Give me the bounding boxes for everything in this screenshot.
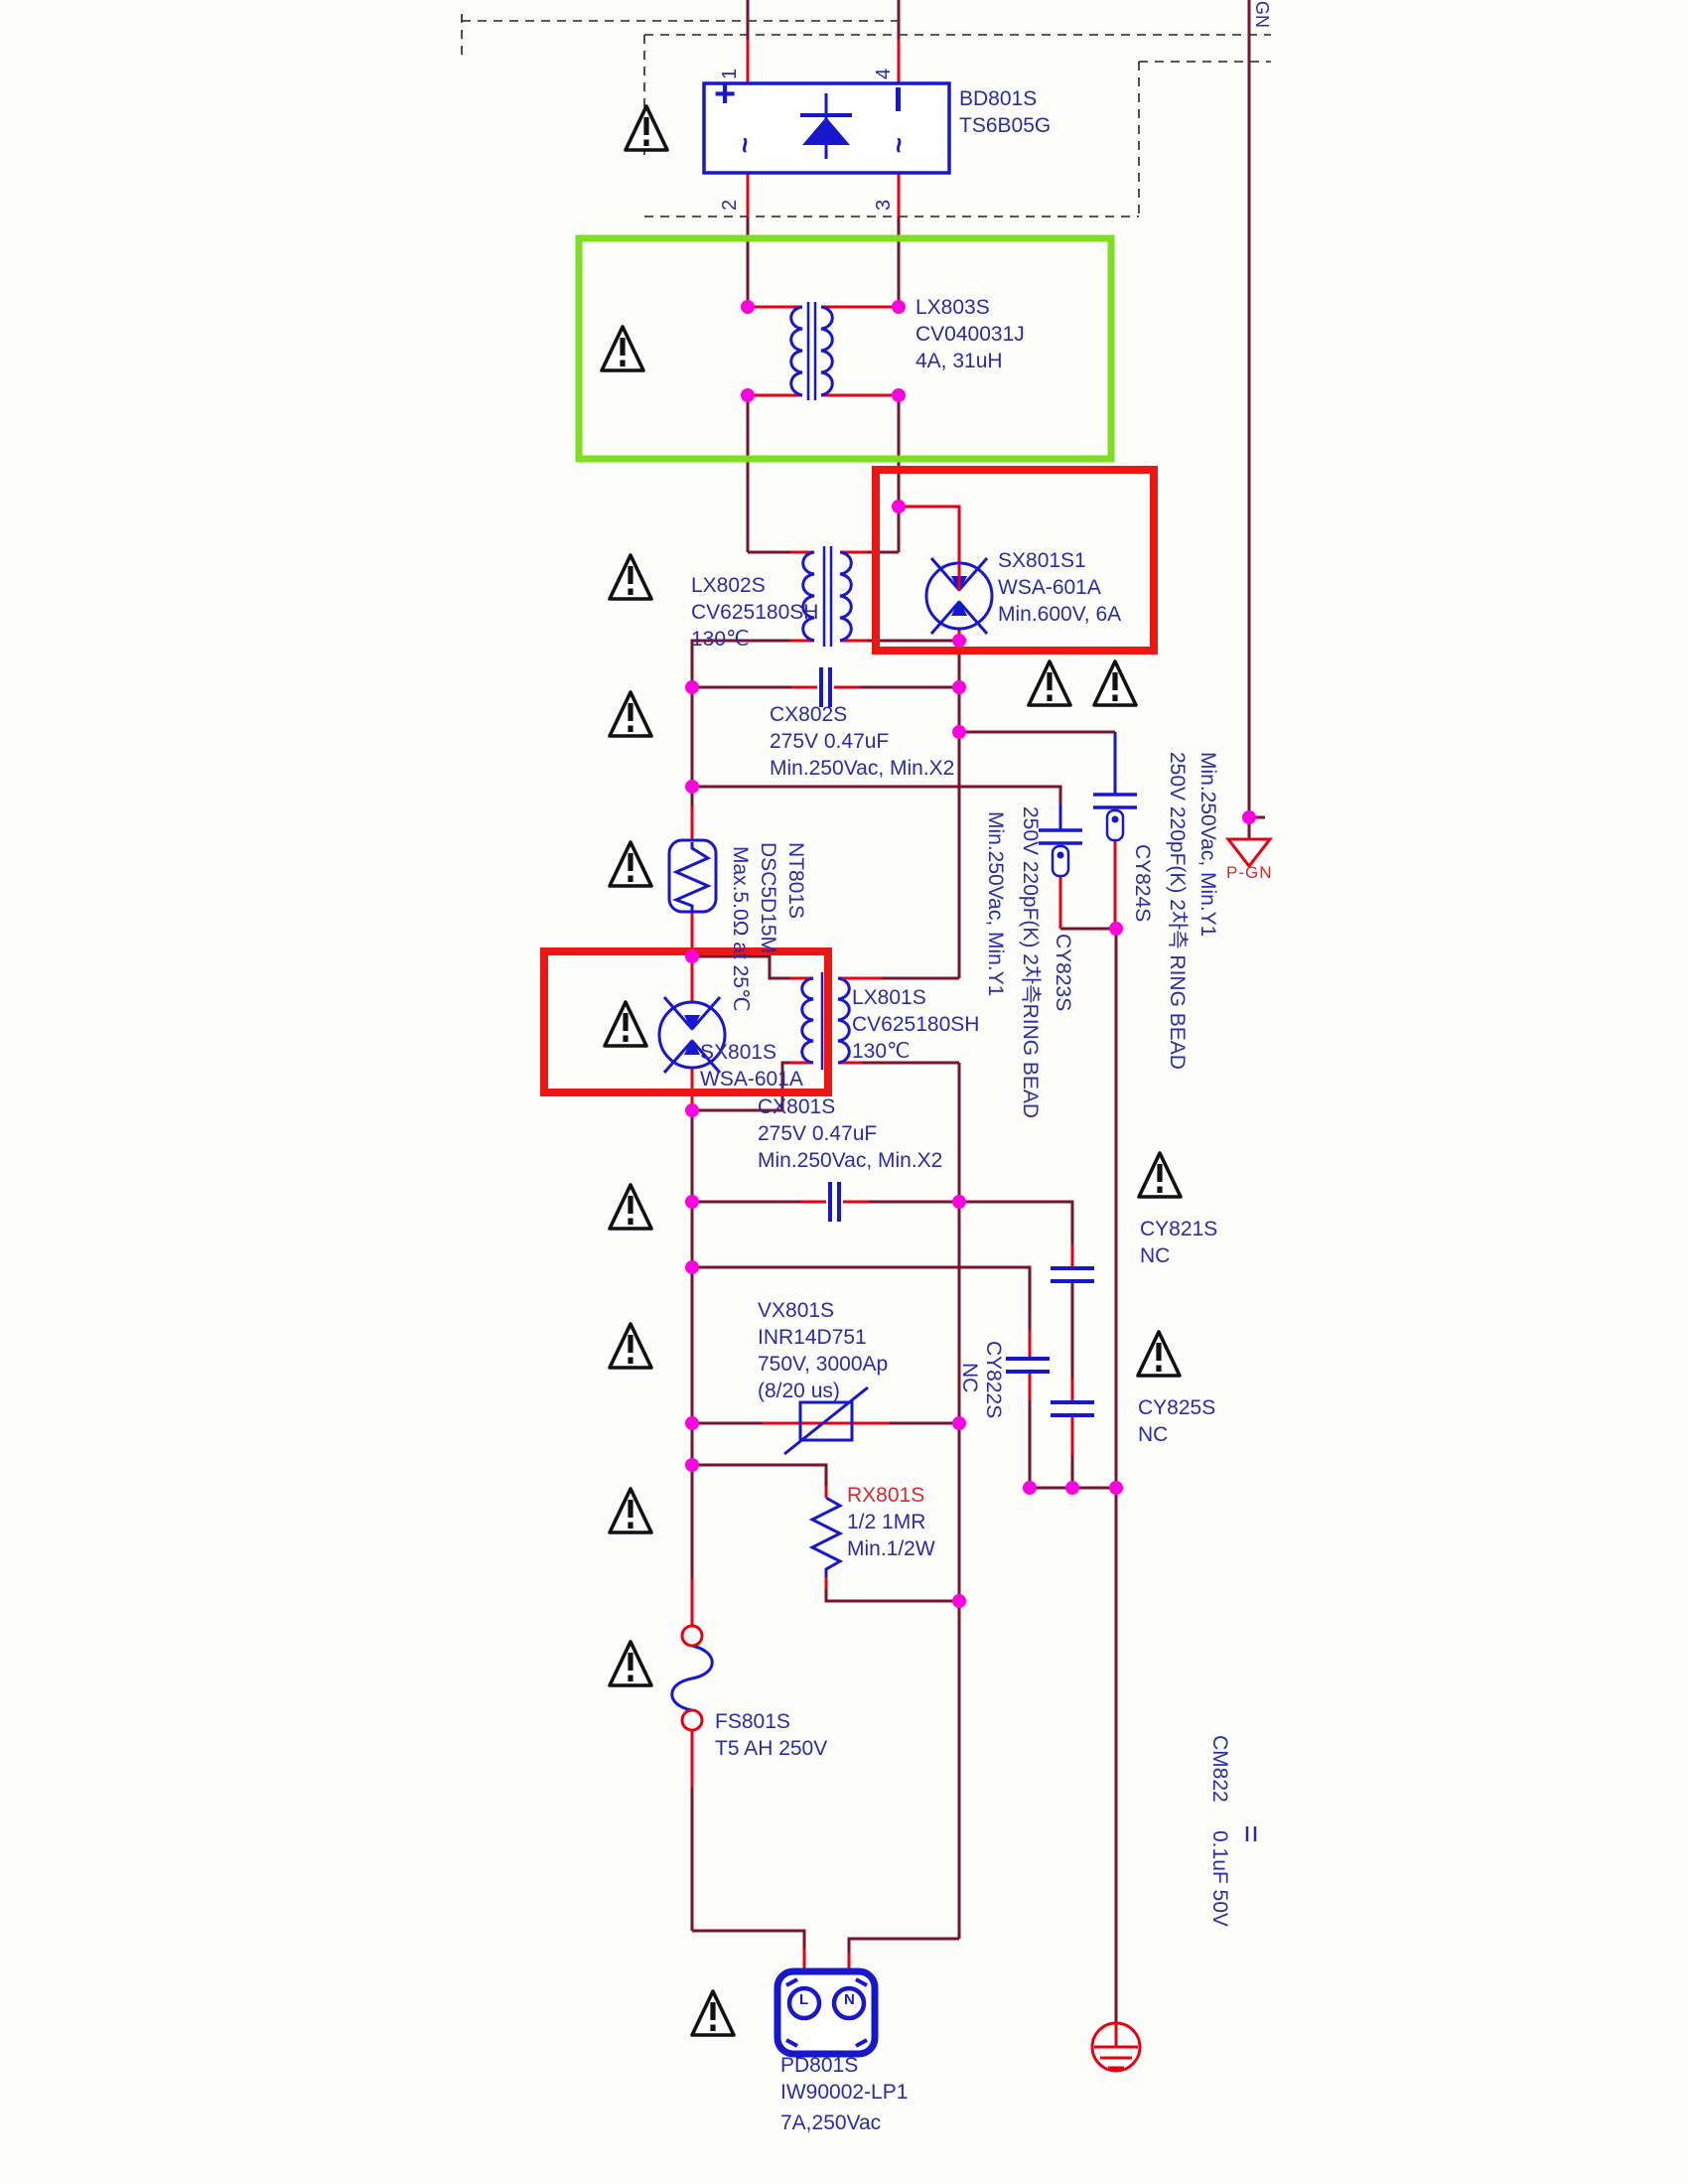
nt801s-ref: NT801S (783, 842, 807, 919)
rx801s-spec: Min.1/2W (847, 1535, 935, 1562)
nt801s-thermistor-symbol (669, 840, 716, 912)
sx801s-ref: SX801S (700, 1039, 803, 1066)
pd801s-rating: 7A,250Vac (780, 2110, 881, 2136)
rx801s-value: 1/2 1MR (847, 1509, 935, 1535)
green-highlight-box (579, 238, 1111, 459)
fs801s-label: FS801S T5 AH 250V (715, 1708, 827, 1762)
bd801s-ref: BD801S (959, 85, 1051, 112)
warning-icon (1094, 661, 1136, 705)
schematic-canvas (0, 0, 1688, 2184)
cy824s-cap-symbol (1093, 795, 1137, 840)
cy824s-ref: CY824S (1130, 844, 1154, 922)
lx803s-label: LX803S CV040031J 4A, 31uH (915, 294, 1025, 374)
cy821s-status: NC (1140, 1242, 1217, 1269)
bridge-ac-mark-right: ~ (885, 137, 913, 153)
sx801s1-arrester-symbol (926, 558, 992, 634)
cx802s-label: CX802S 275V 0.47uF Min.250Vac, Min.X2 (770, 701, 954, 782)
pd801s-pin-n: N (844, 1992, 855, 2007)
cx802s-ref: CX802S (770, 701, 954, 728)
nt801s-part: DSC5D15M (756, 842, 779, 953)
sx801s1-spec: Min.600V, 6A (998, 601, 1121, 628)
p-gn-net-label: P-GN (1226, 863, 1273, 883)
rx801s-label: RX801S 1/2 1MR Min.1/2W (847, 1482, 935, 1562)
bridge-pin1-number: 1 (719, 69, 741, 79)
lx802s-temp: 130℃ (691, 626, 818, 653)
cy825s-status: NC (1138, 1421, 1215, 1448)
cx801s-cap-symbol (830, 1182, 839, 1222)
sx801s-part: WSA-601A (700, 1066, 803, 1092)
cx801s-ref: CX801S (758, 1093, 942, 1120)
bridge-plus-terminal: + (714, 77, 736, 111)
pd801s-pin-l: L (799, 1992, 808, 2007)
rx801s-resistor-symbol (812, 1498, 840, 1577)
cy825s-cap-symbol (1051, 1402, 1094, 1415)
pd801s-ref: PD801S (780, 2052, 908, 2079)
warning-icon (605, 1002, 646, 1046)
cy824s-spec: 250V 220pF(K) 2차측 RING BEAD (1165, 752, 1189, 1070)
cy822s-cap-symbol (1006, 1359, 1050, 1372)
lx801s-ref: LX801S (852, 984, 979, 1011)
bridge-pin3-number: 3 (873, 200, 895, 211)
lx801s-label: LX801S CV625180SH 130℃ (852, 984, 979, 1065)
sx801s1-part: WSA-601A (998, 574, 1121, 601)
bridge-rectifier-symbol (704, 83, 949, 173)
bridge-pin4-number: 4 (873, 69, 895, 79)
warning-icon (1138, 1332, 1180, 1376)
cy822s-ref: CY822S (981, 1341, 1005, 1418)
lx802s-label: LX802S CV625180SH 130℃ (691, 572, 818, 653)
fs801s-spec: T5 AH 250V (715, 1735, 827, 1762)
cx801s-spec: Min.250Vac, Min.X2 (758, 1147, 942, 1174)
pd801s-label: PD801S IW90002-LP1 (780, 2052, 908, 2106)
sx801s1-label: SX801S1 WSA-601A Min.600V, 6A (998, 547, 1121, 628)
cx801s-label: CX801S 275V 0.47uF Min.250Vac, Min.X2 (758, 1093, 942, 1174)
cy823s-rating: Min.250Vac, Min.Y1 (983, 811, 1007, 996)
warning-icon (626, 106, 667, 150)
lx801s-temp: 130℃ (852, 1038, 979, 1065)
top-edge-net-label-fragment: GN (1250, 1, 1274, 28)
ring-bead-icon (1053, 846, 1068, 876)
schematic-page: BD801S TS6B05G + ~ ~ 1 4 2 3 LX803S CV04… (0, 0, 1688, 2184)
lx803s-choke-symbol (791, 302, 833, 400)
bd801s-label: BD801S TS6B05G (959, 85, 1051, 139)
cy824s-rating: Min.250Vac, Min.Y1 (1196, 752, 1219, 937)
cy823s-ref: CY823S (1051, 934, 1074, 1011)
warning-icon (610, 1324, 651, 1368)
cy821s-cap-symbol (1051, 1268, 1094, 1281)
vx801s-pulse: (8/20 us) (758, 1378, 888, 1404)
vx801s-part: INR14D751 (758, 1324, 888, 1351)
lx803s-spec: 4A, 31uH (915, 348, 1025, 374)
warning-icon (610, 1185, 651, 1229)
warning-icon (610, 1489, 651, 1532)
sx801s1-ref: SX801S1 (998, 547, 1121, 574)
cy822s-status: NC (957, 1363, 981, 1392)
ring-bead-icon (1107, 810, 1123, 840)
cm822-value: 0.1uF 50V (1207, 1830, 1231, 1927)
warning-icon (610, 692, 651, 736)
vx801s-label: VX801S INR14D751 750V, 3000Ap (8/20 us) (758, 1297, 888, 1404)
p-gn-net-arrow-icon (1228, 839, 1270, 866)
warning-icon (610, 842, 651, 886)
cy821s-label: CY821S NC (1140, 1216, 1217, 1269)
lx802s-ref: LX802S (691, 572, 818, 599)
cy823s-cap-symbol (1039, 830, 1082, 876)
warning-icon (692, 1991, 734, 2035)
nt801s-spec: Max.5.0Ω at 25℃ (728, 846, 752, 1012)
sx801s-label: SX801S WSA-601A (700, 1039, 803, 1092)
cx801s-value: 275V 0.47uF (758, 1120, 942, 1147)
pd801s-part: IW90002-LP1 (780, 2079, 908, 2106)
bridge-ac-mark-left: ~ (731, 137, 759, 153)
fs801s-fuse-symbol (672, 1626, 713, 1730)
warning-icon (1139, 1153, 1181, 1197)
cx802s-spec: Min.250Vac, Min.X2 (770, 755, 954, 782)
minus-terminal-mark (896, 87, 901, 111)
lx802s-part: CV625180SH (691, 599, 818, 626)
bd801s-part: TS6B05G (959, 112, 1051, 139)
cy825s-label: CY825S NC (1138, 1394, 1215, 1448)
warning-icon (1029, 661, 1070, 705)
lx803s-part: CV040031J (915, 321, 1025, 348)
cy823s-spec: 250V 220pF(K) 2차측RING BEAD (1018, 806, 1042, 1118)
warning-icon (610, 555, 651, 599)
bridge-pin2-number: 2 (719, 200, 741, 211)
cy825s-ref: CY825S (1138, 1394, 1215, 1421)
cy821s-ref: CY821S (1140, 1216, 1217, 1242)
protective-earth-icon (1092, 2023, 1140, 2071)
fs801s-ref: FS801S (715, 1708, 827, 1735)
cm822-cap-glyph (1247, 1826, 1255, 1841)
warning-icon (610, 1642, 651, 1685)
lx803s-ref: LX803S (915, 294, 1025, 321)
cm822-ref: CM822 (1207, 1735, 1231, 1803)
pd801s-inlet-symbol (777, 1971, 875, 2054)
lx801s-part: CV625180SH (852, 1011, 979, 1038)
warning-icon (602, 327, 643, 370)
rx801s-ref: RX801S (847, 1482, 935, 1509)
vx801s-ref: VX801S (758, 1297, 888, 1324)
cx802s-value: 275V 0.47uF (770, 728, 954, 755)
vx801s-spec: 750V, 3000Ap (758, 1351, 888, 1378)
